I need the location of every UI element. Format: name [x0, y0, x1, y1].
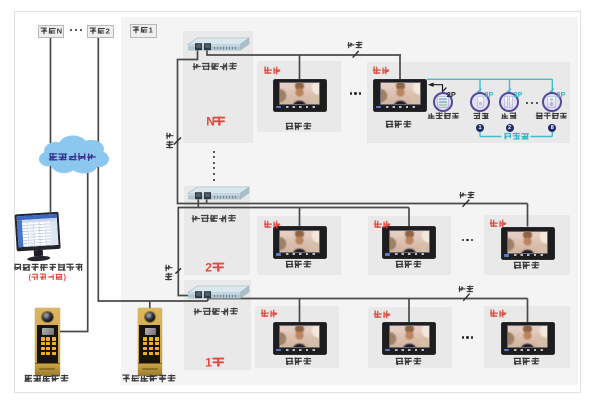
svg-text:2: 2 [106, 27, 110, 36]
svg-text:(: ( [28, 272, 31, 281]
svg-text:1: 1 [149, 26, 154, 35]
svg-text:N: N [57, 27, 63, 36]
svg-text:N: N [206, 114, 215, 128]
svg-text:2: 2 [205, 260, 212, 274]
svg-text:1: 1 [206, 355, 213, 369]
svg-text:): ) [63, 272, 66, 281]
